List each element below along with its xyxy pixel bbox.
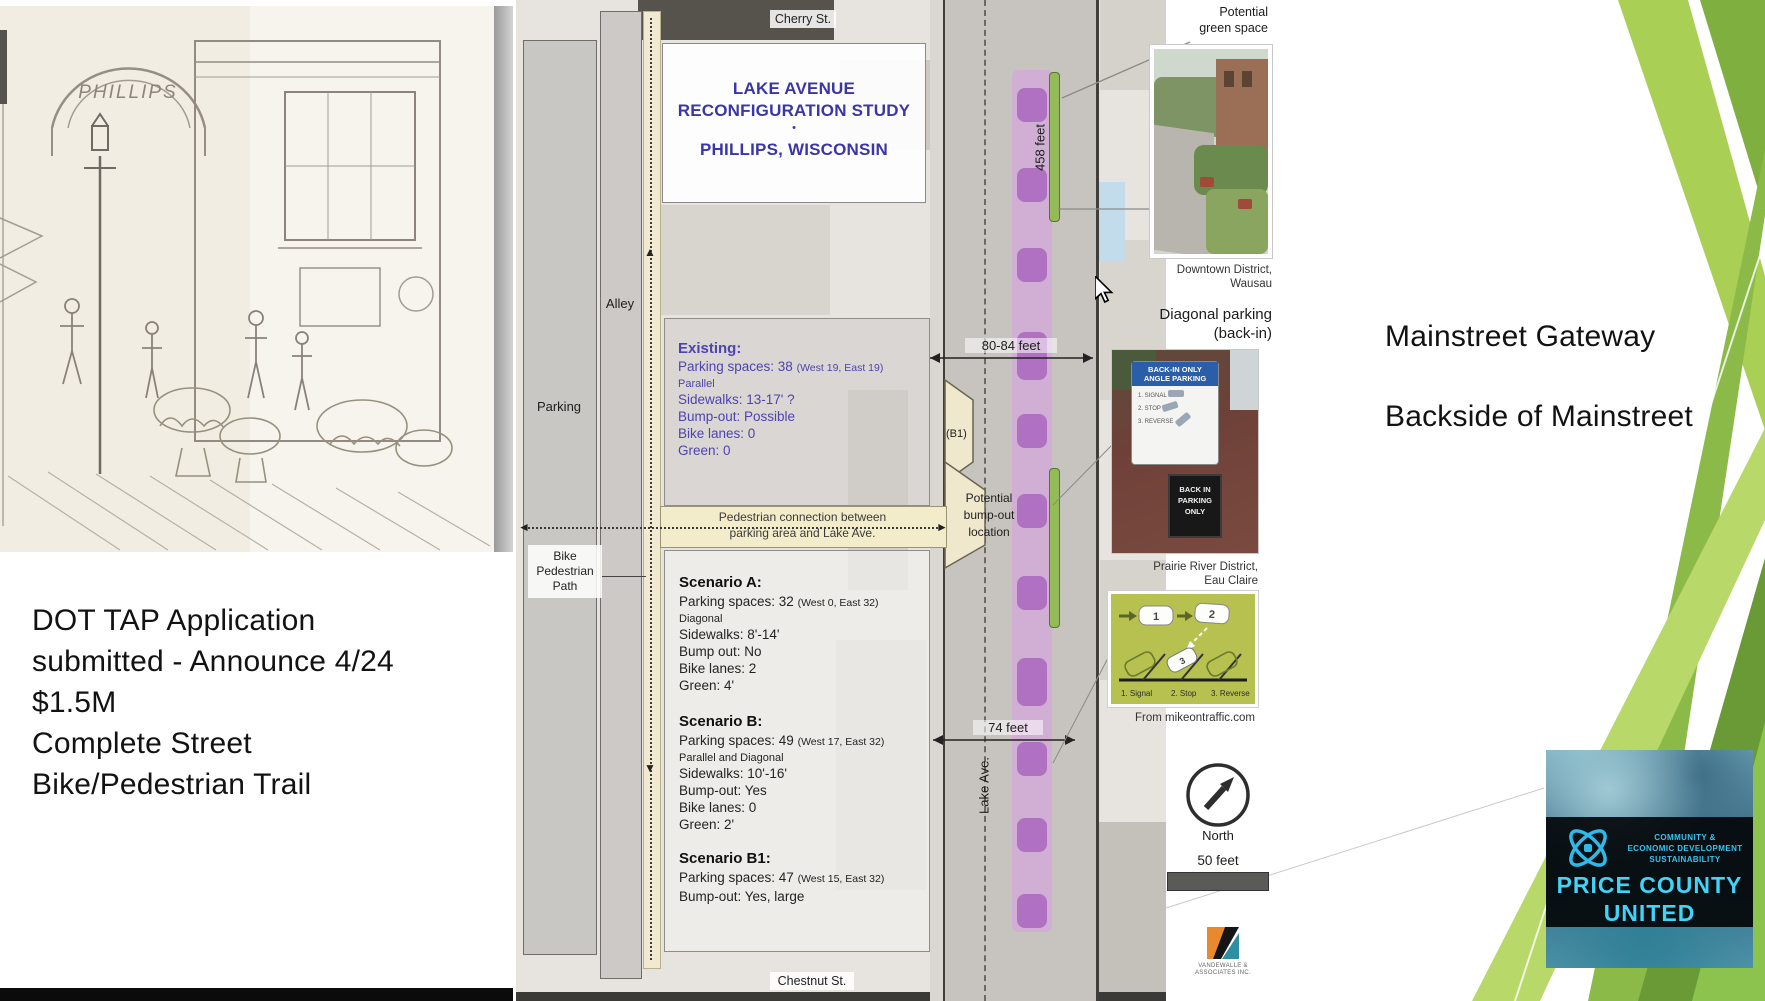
- right-note-2: Backside of Mainstreet: [1385, 396, 1765, 437]
- bump-out-line1: Potential: [960, 490, 1018, 507]
- right-note-1: Mainstreet Gateway: [1385, 316, 1745, 357]
- logo-name-line1: PRICE COUNTY: [1546, 872, 1753, 899]
- map-title-line2: RECONFIGURATION STUDY: [663, 100, 925, 122]
- bike-path-line3: Path: [528, 579, 602, 594]
- highlighted-parking-lane: [1012, 70, 1052, 932]
- left-notes: DOT TAP Application submitted - Announce…: [32, 600, 462, 805]
- presentation-slide: PHILLIPS: [0, 0, 1765, 1001]
- photo2-caption-line1: Prairie River District,: [1118, 560, 1258, 574]
- back-in-steps-diagram: 1 2 3 1. Signal 2. Stop 3. Reverse: [1108, 591, 1258, 707]
- existing-parking-note: (West 19, East 19): [797, 362, 884, 374]
- diagonal-parking-line2: (back-in): [1120, 324, 1272, 343]
- back-in-parking-only-sign: BACK IN PARKING ONLY: [1168, 474, 1222, 538]
- north-label: North: [1188, 828, 1248, 843]
- scenarios-box: Scenario A: Parking spaces: 32 (West 0, …: [664, 550, 930, 952]
- banner-line1: Pedestrian connection between: [660, 509, 945, 525]
- north-arrow-icon: [1180, 758, 1260, 834]
- existing-row: Sidewalks: 13-17' ?: [678, 391, 929, 408]
- car-glyph: [1162, 401, 1179, 413]
- scenario-b1-parking-note: (West 15, East 32): [798, 873, 885, 885]
- west-sidewalk: [930, 0, 943, 1001]
- parking-lot-bar: [523, 40, 597, 955]
- bump-out-label: Potential bump-out location: [960, 490, 1018, 541]
- map-title-line3: PHILLIPS, WISCONSIN: [663, 139, 925, 161]
- scenario-a-heading: Scenario A:: [679, 573, 929, 593]
- scale-bar: [1167, 872, 1269, 891]
- logo-tagline-line2: ECONOMIC DEVELOPMENT: [1624, 843, 1746, 854]
- scenario-b-parking-note: (West 17, East 32): [798, 736, 885, 748]
- map-title-dot: •: [663, 122, 925, 135]
- existing-conditions-box: Existing: Parking spaces: 38 (West 19, E…: [664, 318, 930, 506]
- logo-tagline: COMMUNITY & ECONOMIC DEVELOPMENT SUSTAIN…: [1624, 832, 1746, 865]
- diagram-car1-number: 1: [1153, 611, 1159, 623]
- scenario-row: Sidewalks: 8'-14': [679, 626, 929, 643]
- scenario-b1-heading: Scenario B1:: [679, 849, 929, 869]
- diagram-car2-number: 2: [1208, 609, 1215, 621]
- alley-bar: [600, 11, 642, 979]
- existing-row: Green: 0: [678, 442, 929, 459]
- east-curb-line: [1096, 0, 1099, 1001]
- map-title-line1: LAKE AVENUE: [663, 78, 925, 100]
- bottom-sign-line3: ONLY: [1170, 506, 1220, 517]
- scenario-row: Bump-out: Yes: [679, 782, 929, 799]
- bottom-sign-line2: PARKING: [1170, 495, 1220, 506]
- alley-label: Alley: [598, 296, 642, 311]
- sky-slice: [1230, 350, 1258, 410]
- diagonal-parking-heading: Diagonal parking (back-in): [1120, 305, 1272, 343]
- green-strip-mid: [1049, 468, 1060, 628]
- scenario-a-parking: Parking spaces: 32: [679, 594, 794, 609]
- cherry-st-label: Cherry St.: [770, 10, 836, 28]
- photo2-caption-line2: Eau Claire: [1118, 574, 1258, 588]
- width-measurement-existing: 80-84 feet: [965, 338, 1057, 353]
- sign-item: 1. SIGNAL: [1138, 390, 1218, 403]
- existing-parking: Parking spaces: 38: [678, 359, 793, 374]
- scenario-row: Bump out: No: [679, 643, 929, 660]
- note-line: $1.5M: [32, 682, 462, 723]
- scenario-row: Parallel and Diagonal: [679, 751, 929, 765]
- length-measurement-label: 458 feet: [1033, 98, 1048, 198]
- scenario-row: Bump-out: Yes, large: [679, 888, 929, 905]
- diagram-source: From mikeontraffic.com: [1130, 712, 1260, 724]
- scale-label: 50 feet: [1188, 853, 1248, 868]
- existing-row: Bike lanes: 0: [678, 425, 929, 442]
- b1-label: (B1): [946, 428, 967, 440]
- diagram-step1-label: 1. Signal: [1121, 689, 1152, 698]
- phillips-building-sketch: PHILLIPS: [0, 6, 513, 552]
- width-measurement-proposed: 74 feet: [973, 720, 1043, 735]
- note-line: Bike/Pedestrian Trail: [32, 764, 462, 805]
- logo-tagline-line1: COMMUNITY &: [1624, 832, 1746, 843]
- bike-path-pointer: [602, 576, 646, 577]
- scenario-b1-parking: Parking spaces: 47: [679, 870, 794, 885]
- photo1-caption: Downtown District, Wausau: [1150, 263, 1272, 291]
- scenario-b-parking: Parking spaces: 49: [679, 733, 794, 748]
- banner-line2: parking area and Lake Ave.: [660, 525, 945, 541]
- bike-ped-path-strip: [643, 11, 661, 969]
- path-arrow-down-icon: ▼: [644, 762, 656, 774]
- scenario-row: Green: 2': [679, 816, 929, 833]
- existing-row: Parking spaces: 38 (West 19, East 19): [678, 358, 929, 377]
- diagram-step3-label: 3. Reverse: [1211, 689, 1250, 698]
- existing-row: Parallel: [678, 377, 929, 391]
- back-in-sign-photo: BACK-IN ONLY ANGLE PARKING 1. SIGNAL 2. …: [1112, 350, 1258, 553]
- logo-name-line2: UNITED: [1546, 900, 1753, 927]
- sign-item: 2. STOP: [1138, 403, 1218, 416]
- pedestrian-connection-text: Pedestrian connection between parking ar…: [660, 509, 945, 541]
- sketch-scan-edge: [494, 6, 513, 552]
- bike-path-line1: Bike: [528, 549, 602, 564]
- car-glyph: [1168, 390, 1184, 397]
- mouse-cursor: [1095, 276, 1119, 304]
- logo-tagline-line3: SUSTAINABILITY: [1624, 854, 1746, 865]
- existing-heading: Existing:: [678, 339, 929, 358]
- scenario-row: Parking spaces: 47 (West 15, East 32): [679, 869, 929, 888]
- photo1-caption-line1: Downtown District,: [1150, 263, 1272, 277]
- vendor-name: VANDEWALLE & ASSOCIATES INC.: [1190, 963, 1256, 977]
- downtown-wausau-photo: [1150, 45, 1272, 258]
- photo1-caption-line2: Wausau: [1150, 277, 1272, 291]
- path-dotted-line: [650, 18, 652, 960]
- lake-ave-label: Lake Ave.: [977, 736, 992, 836]
- bike-ped-path-label: Bike Pedestrian Path: [528, 545, 602, 598]
- scenario-row: Diagonal: [679, 612, 929, 626]
- atom-icon: [1560, 824, 1616, 872]
- scenario-row: Parking spaces: 49 (West 17, East 32): [679, 732, 929, 751]
- bike-path-line2: Pedestrian: [528, 564, 602, 579]
- sign-header-line1: BACK-IN ONLY: [1132, 365, 1218, 374]
- diagram-step2-label: 2. Stop: [1171, 689, 1197, 698]
- existing-row: Bump-out: Possible: [678, 408, 929, 425]
- bump-out-line3: location: [960, 524, 1018, 541]
- bottom-sign-line1: BACK IN: [1170, 484, 1220, 495]
- sign-header-line2: ANGLE PARKING: [1132, 374, 1218, 383]
- photo2-caption: Prairie River District, Eau Claire: [1118, 560, 1258, 588]
- map-title-box: LAKE AVENUE RECONFIGURATION STUDY • PHIL…: [662, 43, 926, 203]
- diagonal-parking-line1: Diagonal parking: [1120, 305, 1272, 324]
- sign-item: 3. REVERSE: [1138, 416, 1218, 429]
- note-line: Complete Street: [32, 723, 462, 764]
- green-space-label: Potential green space: [1158, 4, 1268, 36]
- scenario-b-heading: Scenario B:: [679, 712, 929, 732]
- scenario-row: Bike lanes: 0: [679, 799, 929, 816]
- angle-parking-sign: BACK-IN ONLY ANGLE PARKING 1. SIGNAL 2. …: [1132, 362, 1218, 464]
- note-line: DOT TAP Application: [32, 600, 462, 641]
- sketch-arch-text: PHILLIPS: [78, 82, 177, 103]
- crosswalk-highlight: [1099, 182, 1125, 262]
- bump-out-line2: bump-out: [960, 507, 1018, 524]
- scenario-row: Green: 4': [679, 677, 929, 694]
- price-county-united-logo: COMMUNITY & ECONOMIC DEVELOPMENT SUSTAIN…: [1546, 750, 1753, 968]
- letterbox-bar: [0, 988, 513, 1001]
- chestnut-st-label: Chestnut St.: [770, 972, 854, 990]
- scenario-a-parking-note: (West 0, East 32): [798, 597, 879, 609]
- west-curb-line: [943, 0, 945, 1001]
- scenario-row: Parking spaces: 32 (West 0, East 32): [679, 593, 929, 612]
- vandewalle-logo: [1205, 925, 1241, 961]
- note-line: submitted - Announce 4/24: [32, 641, 462, 682]
- path-arrow-up-icon: ▲: [644, 246, 656, 258]
- scenario-row: Sidewalks: 10'-16': [679, 765, 929, 782]
- scenario-row: Bike lanes: 2: [679, 660, 929, 677]
- parking-label: Parking: [523, 399, 595, 414]
- green-strip-north: [1049, 72, 1060, 222]
- green-space-line2: green space: [1158, 20, 1268, 36]
- dotted-arrow-left-icon: ◄: [518, 521, 530, 533]
- green-space-line1: Potential: [1158, 4, 1268, 20]
